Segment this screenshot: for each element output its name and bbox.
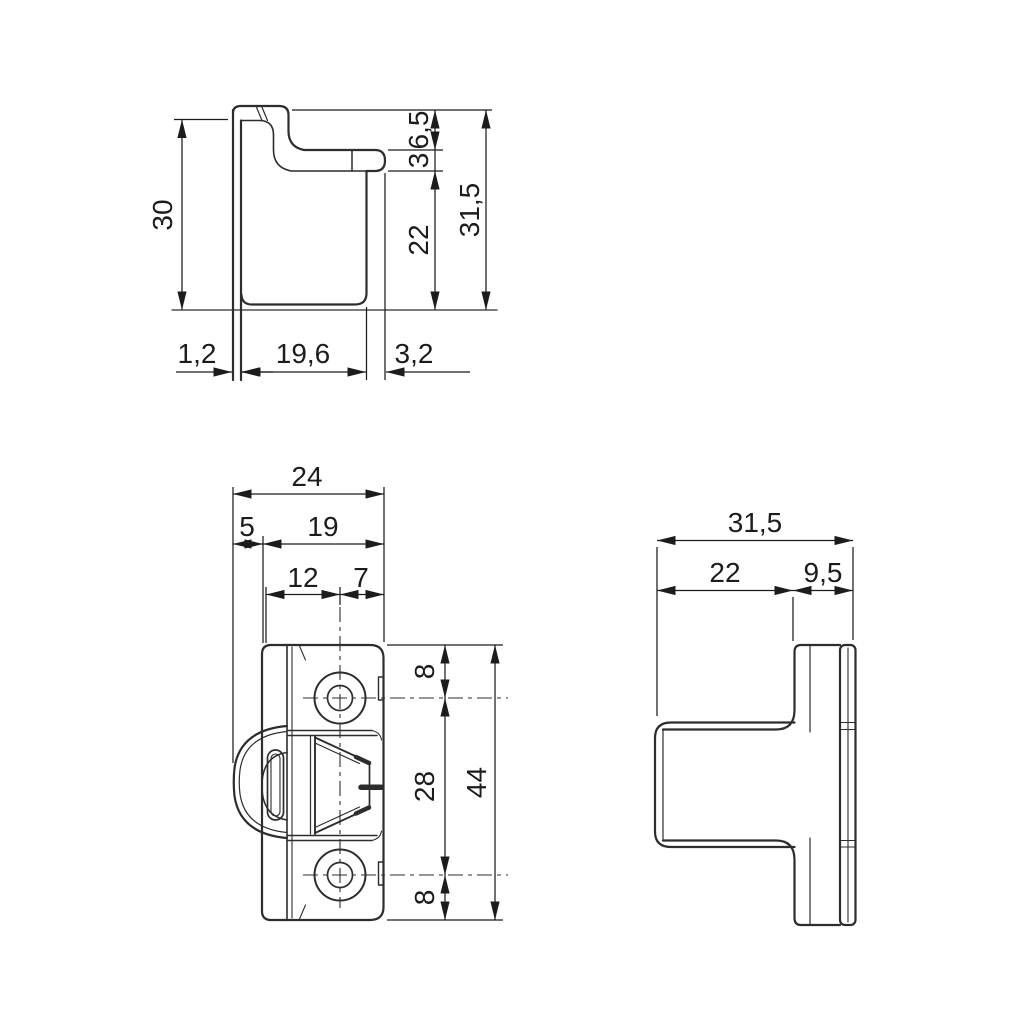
dim-label-plate-width: 19 xyxy=(307,511,338,542)
dim-label-hole-offset-left: 12 xyxy=(287,562,318,593)
front-cap-mark-bottom xyxy=(300,905,306,919)
arm-diagonal-top-thick xyxy=(356,757,369,763)
dim-label-overall-height: 31,5 xyxy=(454,183,485,238)
dim-label-cup-depth: 19,6 xyxy=(276,338,331,369)
side-part xyxy=(655,645,856,925)
dim-label-top-to-hole: 8 xyxy=(409,664,440,680)
front-cap-mark-top xyxy=(300,646,306,660)
profile-cap-and-bend-outer xyxy=(233,106,385,171)
dim-label-flange-thickness: 3 xyxy=(403,153,434,169)
dim-label-overall-width: 24 xyxy=(291,461,322,492)
side-view: 31,5 22 9,5 xyxy=(655,507,856,925)
knuckle-slot-inner xyxy=(271,754,280,816)
arm-diagonal-bottom-inner xyxy=(315,807,360,828)
technical-drawing-page: 30 6,5 3 22 31,5 1,2 19,6 3,2 xyxy=(0,0,1024,1024)
dim-label-overall-depth: 31,5 xyxy=(728,507,783,538)
side-profile-part xyxy=(172,106,497,380)
profile-cap-edge-tick xyxy=(256,106,268,121)
side-body-outline xyxy=(655,723,795,848)
arm-diagonal-top-inner xyxy=(315,743,360,764)
dim-label-flange-depth: 9,5 xyxy=(804,557,843,588)
dim-label-knuckle-offset: 5 xyxy=(239,511,255,542)
dim-label-flange-overhang: 3,2 xyxy=(395,338,434,369)
front-part xyxy=(234,607,508,920)
side-profile-view: 30 6,5 3 22 31,5 1,2 19,6 3,2 xyxy=(147,106,497,380)
knuckle-arc-outer xyxy=(234,726,287,838)
arm-diagonal-bottom-thick xyxy=(356,808,369,814)
dim-label-plate-height: 30 xyxy=(147,199,178,230)
dim-label-hole-to-bottom: 8 xyxy=(409,890,440,906)
front-view: 24 5 19 12 7 8 28 8 44 xyxy=(233,461,508,920)
dim-label-hole-offset-right: 7 xyxy=(353,562,369,593)
profile-cup-outline xyxy=(242,171,367,305)
dim-label-plate-thickness: 1,2 xyxy=(178,338,217,369)
dim-label-step-height: 6,5 xyxy=(403,111,434,150)
dim-label-hole-spacing: 28 xyxy=(409,771,440,802)
side-tab-top xyxy=(663,645,840,730)
front-band-top xyxy=(287,731,377,736)
dim-label-body-depth: 22 xyxy=(709,557,740,588)
technical-drawing-canvas: 30 6,5 3 22 31,5 1,2 19,6 3,2 xyxy=(0,0,1024,1024)
side-tab-bottom xyxy=(663,841,840,926)
dim-label-cup-height: 22 xyxy=(403,224,434,255)
profile-bend-inner xyxy=(241,121,368,172)
dim-label-front-overall-height: 44 xyxy=(461,767,492,798)
front-band-bottom xyxy=(287,836,377,841)
front-dimensions xyxy=(233,487,503,920)
